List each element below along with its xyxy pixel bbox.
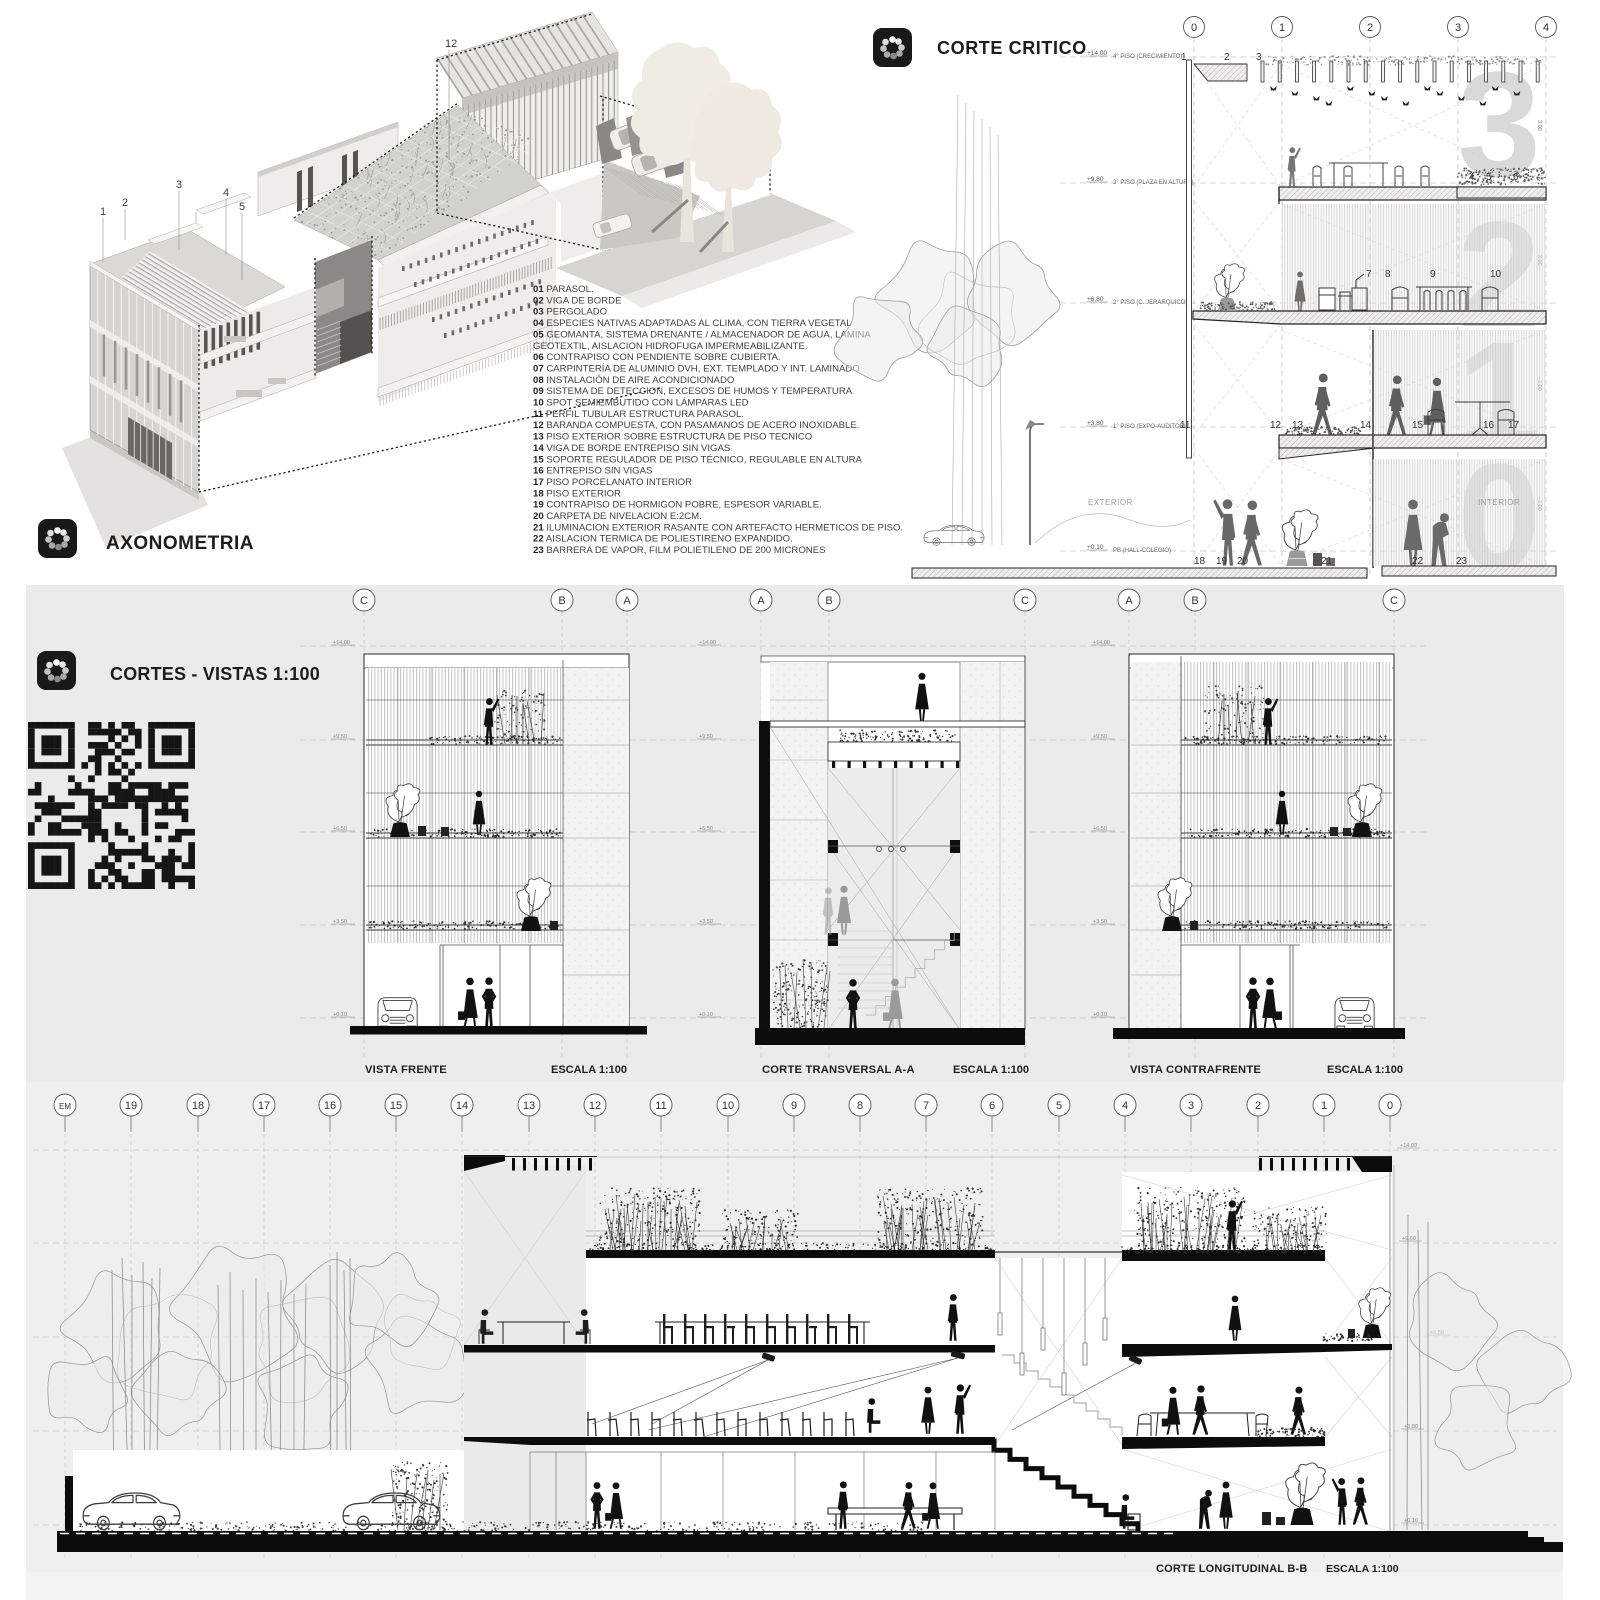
svg-text:10: 10 (1490, 269, 1502, 280)
svg-text:15 SOPORTE REGULADOR DE PISO T: 15 SOPORTE REGULADOR DE PISO TÉCNICO, RE… (533, 454, 863, 465)
svg-text:4: 4 (1469, 172, 1475, 183)
svg-text:EM: EM (59, 1102, 71, 1111)
svg-text:11 PERFIL TUBULAR ESTRUCTURA P: 11 PERFIL TUBULAR ESTRUCTURA PARASOL. (533, 409, 744, 420)
svg-text:A: A (757, 595, 765, 607)
svg-text:11: 11 (1180, 420, 1191, 431)
svg-text:2: 2 (122, 197, 128, 209)
svg-text:21 ILUMINACION EXTERIOR RASANT: 21 ILUMINACION EXTERIOR RASANTE CON ARTE… (533, 522, 903, 533)
svg-text:19: 19 (125, 1100, 137, 1112)
svg-text:22 AISLACION TERMICA DE POLIES: 22 AISLACION TERMICA DE POLIESTIRENO EXP… (533, 534, 793, 545)
svg-text:9: 9 (791, 1100, 797, 1112)
svg-text:02 VIGA DE BORDE: 02 VIGA DE BORDE (533, 295, 622, 306)
svg-text:14 VIGA DE BORDE ENTREPISO SIN: 14 VIGA DE BORDE ENTREPISO SIN VIGAS (533, 443, 730, 454)
svg-text:7: 7 (923, 1100, 929, 1112)
svg-text:VISTA FRENTE: VISTA FRENTE (365, 1064, 447, 1076)
svg-text:16 ENTREPISO SIN VIGAS: 16 ENTREPISO SIN VIGAS (533, 466, 652, 477)
svg-text:13: 13 (1292, 420, 1304, 431)
svg-text:6: 6 (989, 1100, 995, 1112)
svg-text:18: 18 (1194, 556, 1206, 567)
svg-text:5: 5 (239, 201, 245, 213)
svg-text:B: B (1191, 595, 1198, 607)
svg-text:ESCALA 1:100: ESCALA 1:100 (953, 1064, 1029, 1076)
svg-text:2: 2 (1367, 22, 1373, 34)
svg-text:B: B (825, 595, 832, 607)
svg-text:1: 1 (1321, 1100, 1327, 1112)
svg-text:7: 7 (1366, 269, 1372, 280)
svg-text:03 PERGOLADO: 03 PERGOLADO (533, 307, 607, 318)
svg-text:B: B (558, 595, 565, 607)
svg-text:9: 9 (1430, 269, 1436, 280)
svg-text:VISTA CONTRAFRENTE: VISTA CONTRAFRENTE (1130, 1064, 1261, 1076)
svg-text:12 BARANDA COMPUESTA, CON PASA: 12 BARANDA COMPUESTA, CON PASAMANOS DE A… (533, 420, 859, 431)
svg-text:2: 2 (1255, 1100, 1261, 1112)
svg-text:2° PISO (C. JERARQUICO): 2° PISO (C. JERARQUICO) (1113, 300, 1187, 306)
svg-text:22: 22 (1412, 556, 1424, 567)
svg-text:3: 3 (1455, 22, 1461, 34)
svg-text:8: 8 (1385, 269, 1391, 280)
svg-text:4: 4 (1543, 22, 1549, 34)
svg-text:3° PISO (PLAZA EN ALTURA): 3° PISO (PLAZA EN ALTURA) (1113, 180, 1194, 186)
svg-text:A: A (1125, 595, 1133, 607)
svg-text:17: 17 (1508, 420, 1520, 431)
svg-text:15: 15 (1412, 420, 1424, 431)
svg-text:10 SPOT SEMIEMBUTIDO CON LÁMPA: 10 SPOT SEMIEMBUTIDO CON LÁMPARAS LED (533, 398, 749, 409)
svg-text:3: 3 (1188, 1100, 1194, 1112)
svg-text:23 BARRERA DE VAPOR, FILM POLI: 23 BARRERA DE VAPOR, FILM POLIETILENO DE… (533, 545, 826, 556)
svg-text:05 GEOMANTA, SISTEMA DRENANTE: 05 GEOMANTA, SISTEMA DRENANTE / ALMACENA… (533, 329, 871, 340)
svg-text:06 CONTRAPISO CON PENDIENTE S: 06 CONTRAPISO CON PENDIENTE SOBRE CUBIER… (533, 352, 781, 363)
svg-text:13: 13 (523, 1100, 535, 1112)
svg-text:A: A (623, 595, 631, 607)
svg-text:ESCALA 1:100: ESCALA 1:100 (551, 1064, 627, 1076)
svg-text:08 INSTALACIÓN DE AIRE ACONDIC: 08 INSTALACIÓN DE AIRE ACONDICIONADO (533, 375, 734, 386)
svg-text:15: 15 (390, 1100, 402, 1112)
svg-text:INTERIOR: INTERIOR (1478, 498, 1520, 507)
svg-text:EXTERIOR: EXTERIOR (1088, 498, 1133, 507)
svg-text:20: 20 (1237, 556, 1249, 567)
svg-text:GEOTEXTIL, AISLACION HIDROFUGA: GEOTEXTIL, AISLACION HIDROFUGA IMPERMEAB… (533, 341, 808, 352)
svg-text:01 PARASOL.: 01 PARASOL. (533, 284, 594, 295)
svg-text:PB (HALL-COLEGIO): PB (HALL-COLEGIO) (1113, 548, 1171, 554)
svg-text:ESCALA 1:100: ESCALA 1:100 (1327, 1064, 1403, 1076)
svg-text:1: 1 (1181, 52, 1187, 63)
svg-text:19 CONTRAPISO DE HORMIGON POBR: 19 CONTRAPISO DE HORMIGON POBRE, ESPESOR… (533, 500, 822, 511)
svg-text:4° PISO (CRECIMIENTO): 4° PISO (CRECIMIENTO) (1113, 54, 1182, 60)
svg-text:21: 21 (1321, 556, 1333, 567)
svg-text:11: 11 (655, 1100, 666, 1112)
svg-text:CORTE CRITICO: CORTE CRITICO (937, 38, 1087, 58)
svg-text:13 PISO EXTERIOR SOBRE ESTRUCT: 13 PISO EXTERIOR SOBRE ESTRUCTURA DE PIS… (533, 432, 812, 443)
svg-text:0: 0 (1387, 1100, 1393, 1112)
svg-text:19: 19 (1216, 556, 1228, 567)
svg-text:AXONOMETRIA: AXONOMETRIA (106, 533, 254, 554)
svg-text:5: 5 (1486, 172, 1492, 183)
svg-text:2: 2 (1224, 52, 1230, 63)
svg-text:23: 23 (1456, 556, 1468, 567)
svg-text:6: 6 (1513, 172, 1519, 183)
svg-text:12: 12 (1270, 420, 1282, 431)
svg-text:17: 17 (258, 1100, 270, 1112)
svg-text:07 CARPINTERÍA DE ALUMINIO DVH: 07 CARPINTERÍA DE ALUMINIO DVH, EXT. TEM… (533, 364, 860, 375)
svg-text:4: 4 (1122, 1100, 1128, 1112)
svg-text:16: 16 (324, 1100, 336, 1112)
svg-text:C: C (360, 595, 368, 607)
svg-text:17 PISO PORCELANATO INTERIOR: 17 PISO PORCELANATO INTERIOR (533, 477, 692, 488)
svg-text:C: C (1021, 595, 1029, 607)
svg-text:8: 8 (857, 1100, 863, 1112)
svg-text:10: 10 (722, 1100, 734, 1112)
svg-text:12: 12 (589, 1100, 601, 1112)
svg-text:14: 14 (456, 1100, 468, 1112)
svg-text:12: 12 (445, 38, 457, 50)
svg-text:18 PISO EXTERIOR: 18 PISO EXTERIOR (533, 488, 621, 499)
svg-text:04 ESPECIES NATIVAS ADAPTADAS: 04 ESPECIES NATIVAS ADAPTADAS AL CLIMA, … (533, 318, 852, 329)
svg-text:14: 14 (1360, 420, 1372, 431)
svg-text:1: 1 (1279, 22, 1285, 34)
svg-text:CORTES - VISTAS 1:100: CORTES - VISTAS 1:100 (110, 664, 320, 684)
svg-text:4: 4 (223, 187, 229, 199)
svg-text:5: 5 (1056, 1100, 1062, 1112)
svg-text:3.00: 3.00 (1536, 120, 1542, 131)
svg-text:3: 3 (176, 179, 182, 191)
svg-text:0: 0 (1191, 22, 1197, 34)
svg-text:18: 18 (192, 1100, 204, 1112)
svg-text:20 CARPETA DE NIVELACION E:2CM: 20 CARPETA DE NIVELACION E:2CM. (533, 511, 702, 522)
svg-text:C: C (1390, 595, 1398, 607)
svg-text:09 SISTEMA DE DETECCION, EXCES: 09 SISTEMA DE DETECCION, EXCESOS DE HUMO… (533, 386, 853, 397)
svg-text:1: 1 (100, 206, 106, 218)
svg-text:CORTE TRANSVERSAL A-A: CORTE TRANSVERSAL A-A (762, 1064, 915, 1076)
svg-text:16: 16 (1483, 420, 1495, 431)
